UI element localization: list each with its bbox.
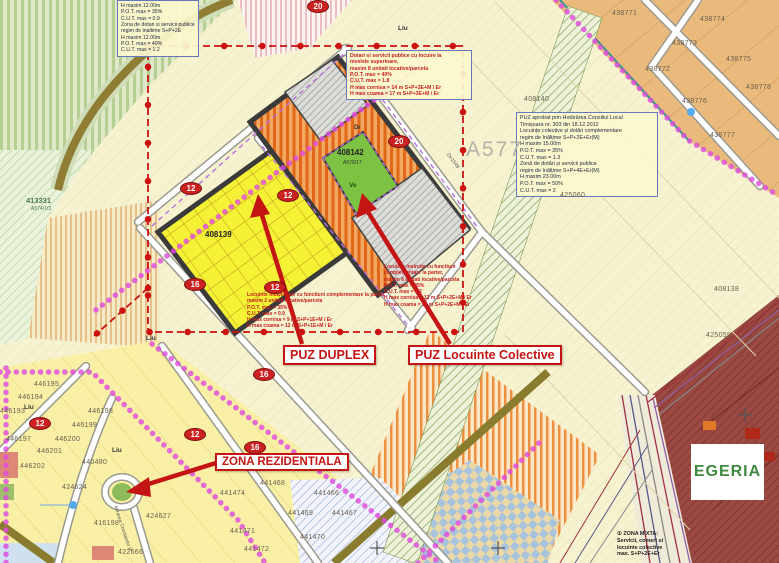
reg-line: P.O.T. max = 35% — [520, 148, 654, 155]
zm-line: Servicii, comert si — [617, 538, 663, 545]
road-width-marker: 12 — [264, 281, 286, 294]
parcel-number: 438774 — [700, 16, 725, 23]
parcel-number: 422666 — [118, 549, 143, 556]
parcel-number: 446202 — [20, 463, 45, 470]
road-width-marker: 12 — [180, 182, 202, 195]
reg-line: C.U.T. max = 1.2 — [121, 47, 195, 53]
road-width-marker: 20 — [307, 0, 329, 13]
label-puz-duplex[interactable]: PUZ DUPLEX — [283, 345, 376, 365]
reg-line: H max coama = 17 m S+P+3E+M / Er — [350, 91, 468, 97]
landuse-liu: Liu — [24, 404, 34, 411]
reg-line: Timișoara nr. 303 din 18.12.2012 — [520, 122, 654, 129]
blue-dot — [69, 501, 77, 509]
label-puz-colective[interactable]: PUZ Locuinte Colective — [408, 345, 562, 365]
road-width-marker: 16 — [253, 368, 275, 381]
road-width-marker: 12 — [184, 428, 206, 441]
reg-line: Zonă de dotări și servicii publice — [520, 161, 654, 168]
parcel-sub-label: A574/1/3 — [31, 206, 51, 212]
zm-line: max. S+P+2E+Er — [617, 551, 663, 558]
parcel-number: 441474 — [220, 490, 245, 497]
egeria-text: EGERIA — [694, 463, 761, 481]
parcel-number: 446200 — [55, 436, 80, 443]
parcel-number: 438771 — [612, 10, 637, 17]
regulation-block-right: PUZ aprobat prin Hotărârea Consiliul Loc… — [516, 112, 658, 197]
label-a577: A577 — [466, 138, 523, 162]
parcel-number: 446198 — [88, 408, 113, 415]
reg-line: C.U.T. max = 1.3 — [520, 155, 654, 162]
parcel-number: 425060 — [560, 192, 585, 199]
parcel-number: 425059 — [706, 332, 731, 339]
parcel-number: 424624 — [62, 484, 87, 491]
parcel-number: 424627 — [146, 513, 171, 520]
parcel-number: 438776 — [682, 98, 707, 105]
parcel-number: 446197 — [6, 436, 31, 443]
landuse-liu: Liu — [398, 25, 408, 32]
parcel-number: 416198 — [94, 520, 119, 527]
reg-line: P.O.T. max = 50% — [520, 181, 654, 188]
reg-line: H max cornisa = 12 m S+P+2E+M / Er — [384, 295, 472, 301]
reg-line: PUZ aprobat prin Hotărârea Consiliul Loc… — [520, 115, 654, 122]
parcel-label-408139: 408139 — [205, 230, 232, 239]
reg-line: H max coama = 15 m S+P+2E+M / Er — [384, 302, 472, 308]
road-width-marker: 12 — [29, 417, 51, 430]
landuse-liu: Liu — [112, 447, 122, 454]
label-dr: Dr — [354, 125, 361, 131]
parcel-number: 438775 — [726, 56, 751, 63]
label-egeria: EGERIA — [691, 444, 764, 500]
parcel-number: 438778 — [746, 84, 771, 91]
parcel-number: 446195 — [34, 381, 59, 388]
parcel-number: 441470 — [300, 534, 325, 541]
zm-line: ZONA MIXTA: — [623, 531, 658, 537]
reg-line: regim de înălțime S+P+4E+Er(M) — [520, 168, 654, 175]
regulation-block-center: Locuinte insiruite cu functiuni compleme… — [384, 264, 472, 308]
parcel-number: 441467 — [332, 510, 357, 517]
parcel-number: 438772 — [645, 66, 670, 73]
zm-line: locuinte colective — [617, 545, 663, 552]
parcel-label-413331: 413331 — [26, 196, 51, 205]
road-width-marker: 16 — [244, 441, 266, 454]
parcel-number: 408138 — [714, 286, 739, 293]
reg-line: maxim 6 unitati locative/parcela — [384, 277, 472, 283]
regulation-block-top-left: H maxim 12.00m P.O.T. max = 35% C.U.T. m… — [117, 0, 199, 57]
parcel-number: 441469 — [288, 510, 313, 517]
parcel-number: 440480 — [82, 459, 107, 466]
parcel-number: 438773 — [672, 40, 697, 47]
label-ve: Ve — [349, 182, 357, 189]
road-width-marker: 16 — [184, 278, 206, 291]
regulation-block-top-center: Dotari si servicii publice cu locuire la… — [346, 50, 472, 100]
reg-line: H max coama = 12 m S+P+1E+M / Er — [247, 323, 385, 329]
parcel-number: 446201 — [37, 448, 62, 455]
parcel-number: 441466 — [314, 490, 339, 497]
parcel-number: 441468 — [260, 480, 285, 487]
reg-line: H maxim 23.00m — [520, 174, 654, 181]
parcel-number: 446194 — [18, 394, 43, 401]
zona-mixta-bullet: ① — [617, 531, 622, 537]
reg-line: Locuințe colective și dotări complementa… — [520, 128, 654, 135]
parcel-number: 438777 — [710, 132, 735, 139]
road-width-marker: 12 — [277, 189, 299, 202]
reg-line: regim de înălțime S+P+2E+Er(M) — [520, 135, 654, 142]
parcel-number: 441472 — [244, 546, 269, 553]
parcel-number: 446199 — [72, 422, 97, 429]
parcel-label-408142: 408142 — [337, 148, 364, 157]
parcel-number: 446193 — [0, 408, 25, 415]
blue-dot — [687, 108, 695, 116]
regulation-block-yellow: Locuinte individuale cu functiuni comple… — [247, 292, 385, 330]
parcel-sub-label: A579/17 — [343, 160, 362, 166]
road-width-marker: 20 — [388, 135, 410, 148]
parcel-number: 441471 — [230, 528, 255, 535]
reg-line: H maxim 15.00m — [520, 141, 654, 148]
label-zona-rezidentiala[interactable]: ZONA REZIDENTIALA — [215, 453, 349, 471]
zoning-map-viewport[interactable]: H maxim 12.00m P.O.T. max = 35% C.U.T. m… — [0, 0, 779, 563]
landuse-liu: Liu — [146, 335, 156, 342]
reg-line: C.U.T. max = 2 — [520, 188, 654, 195]
zona-mixta-note: ① ZONA MIXTA: Servicii, comert si locuin… — [617, 531, 663, 558]
parcel-number: 408140 — [524, 96, 549, 103]
